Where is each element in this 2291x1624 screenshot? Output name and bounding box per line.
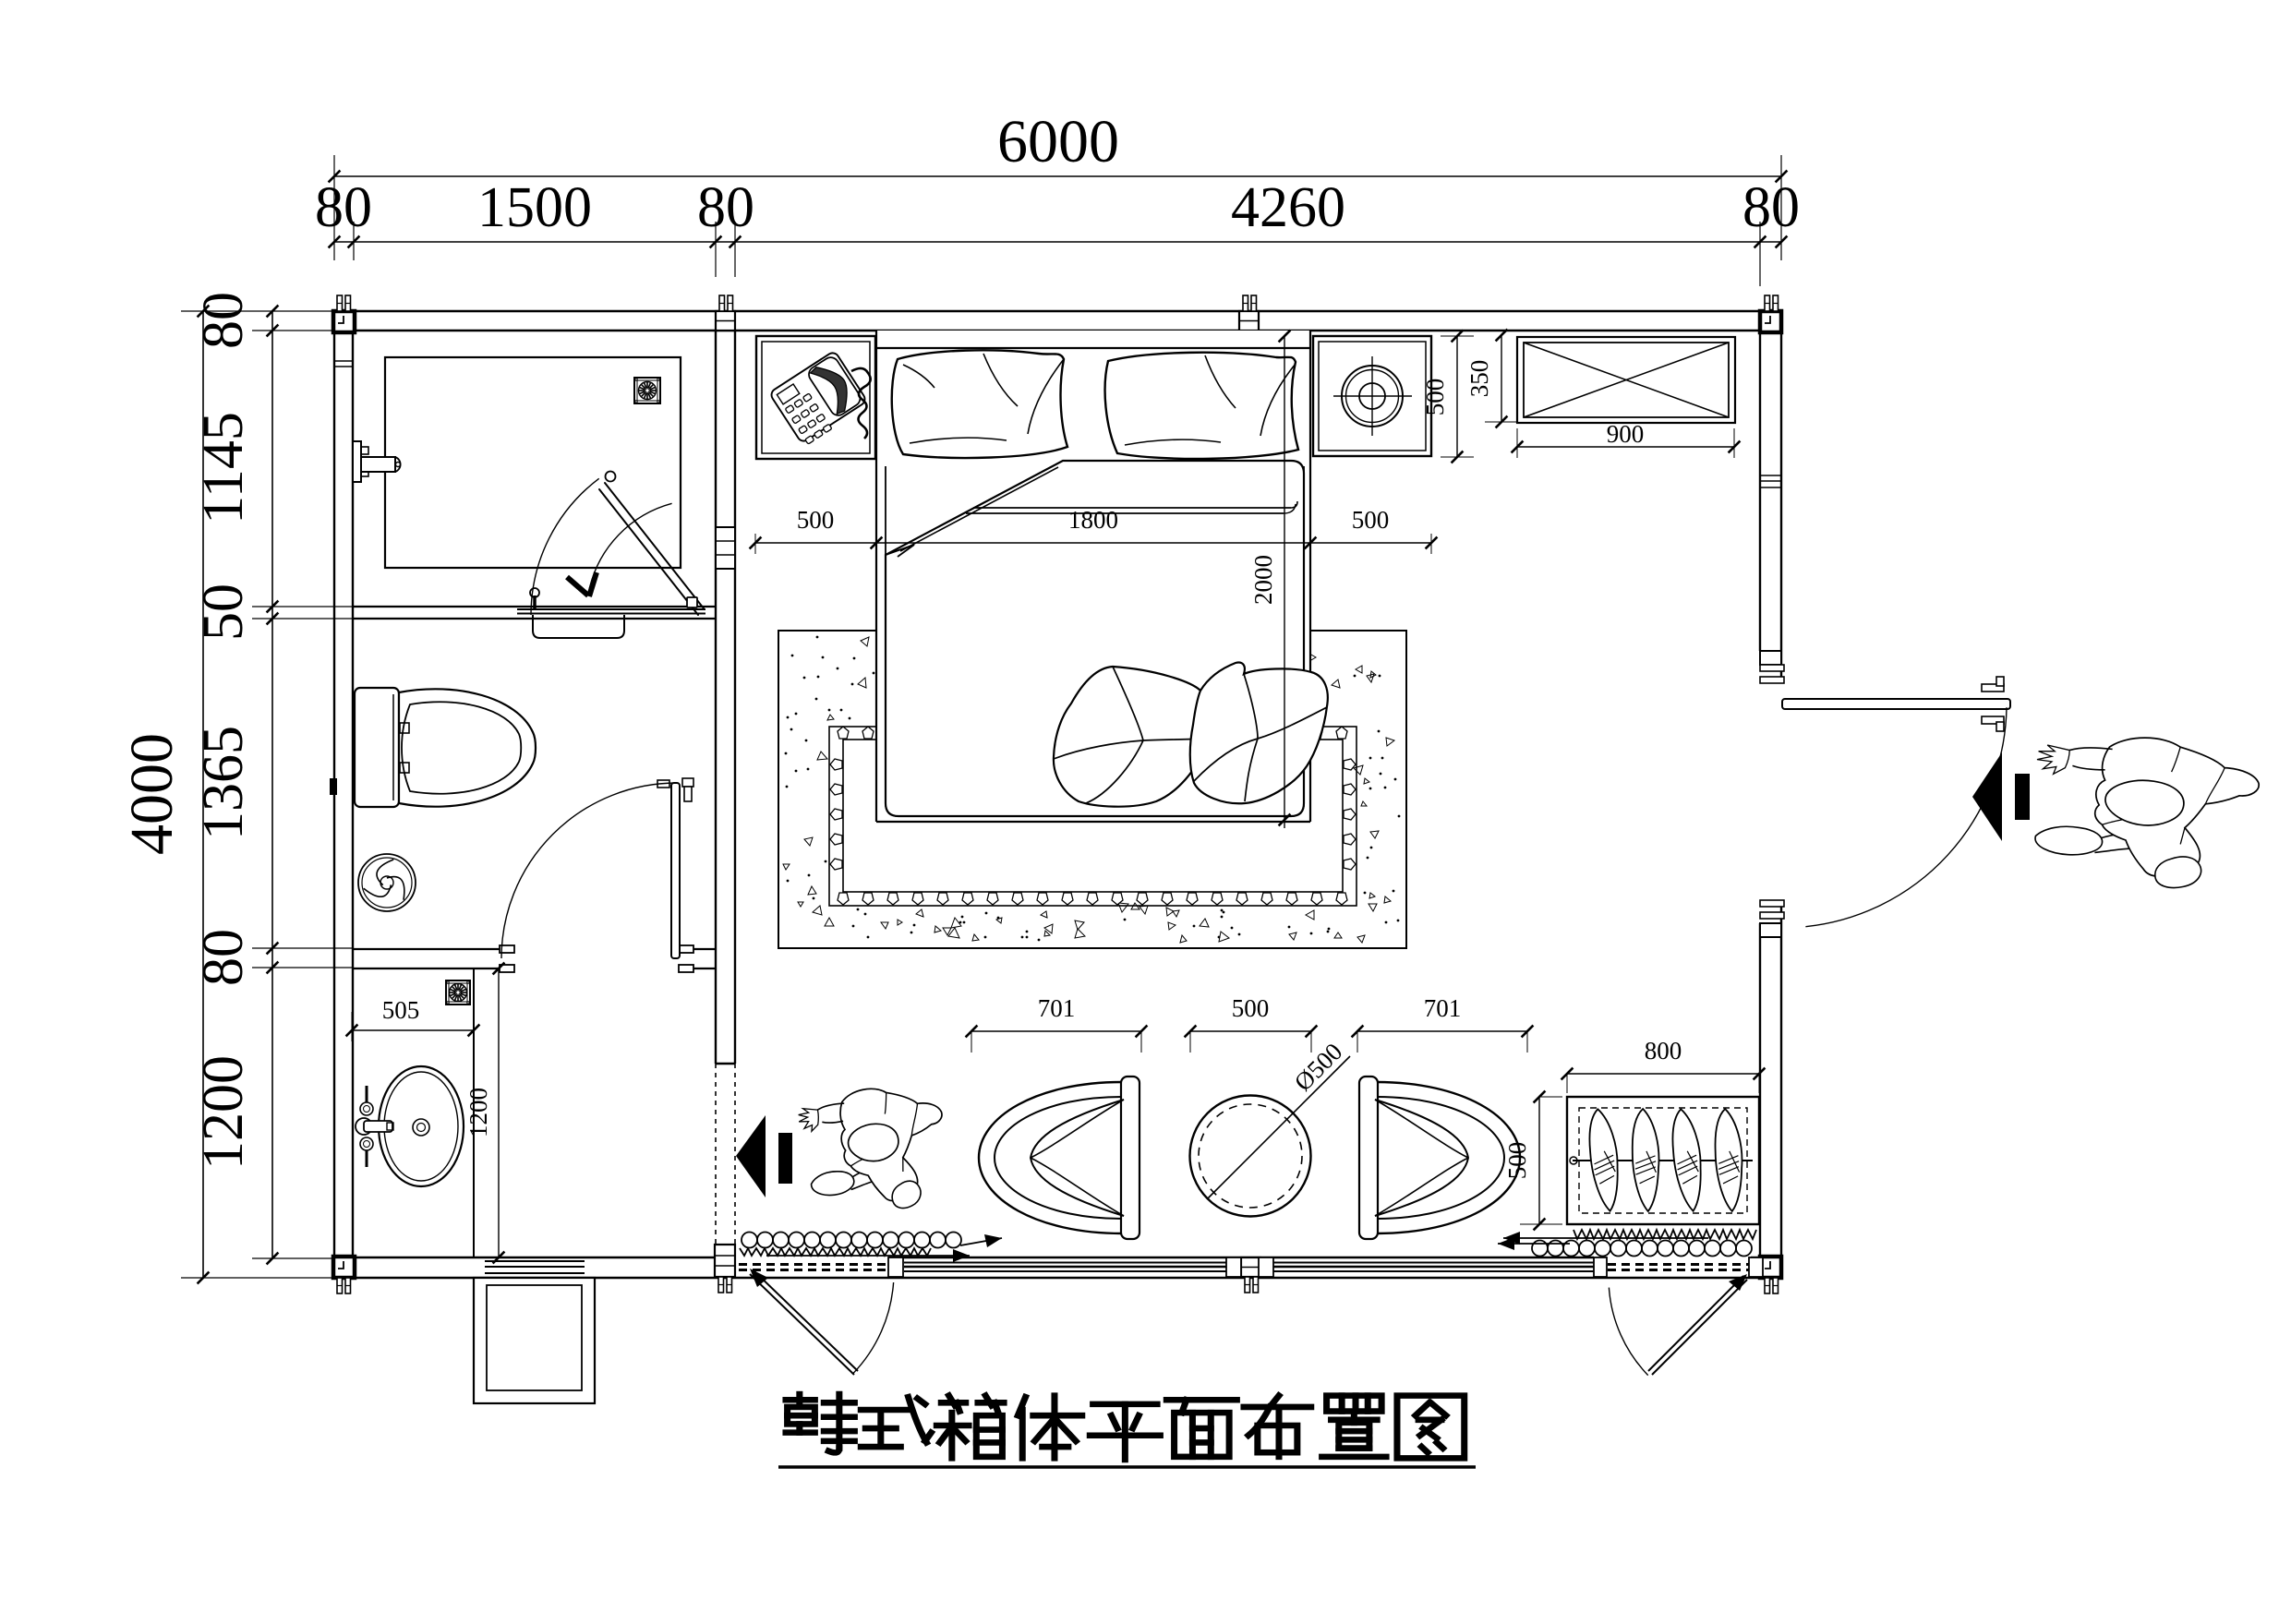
svg-text:500: 500 [1421,379,1449,416]
svg-text:6000: 6000 [997,108,1119,175]
svg-text:1145: 1145 [192,412,255,524]
svg-text:500: 500 [1232,994,1270,1022]
svg-text:80: 80 [697,176,754,239]
svg-text:1500: 1500 [477,176,592,239]
svg-text:701: 701 [1424,994,1462,1022]
svg-text:500: 500 [1352,506,1390,534]
svg-text:50: 50 [192,583,255,641]
svg-text:80: 80 [192,292,255,349]
svg-text:350: 350 [1465,360,1493,398]
svg-text:80: 80 [315,176,372,239]
svg-text:4260: 4260 [1231,176,1345,239]
svg-text:80: 80 [1742,176,1800,239]
svg-text:1200: 1200 [464,1088,492,1137]
svg-text:500: 500 [797,506,835,534]
svg-text:505: 505 [382,996,420,1024]
svg-text:1800: 1800 [1068,506,1118,534]
svg-text:1365: 1365 [192,726,255,840]
svg-text:800: 800 [1645,1037,1682,1065]
svg-text:1200: 1200 [192,1055,255,1170]
svg-text:500: 500 [1503,1142,1531,1180]
svg-text:900: 900 [1607,420,1645,448]
svg-text:701: 701 [1038,994,1076,1022]
svg-text:2000: 2000 [1249,555,1277,605]
svg-text:80: 80 [192,929,255,986]
svg-text:4000: 4000 [118,733,186,855]
